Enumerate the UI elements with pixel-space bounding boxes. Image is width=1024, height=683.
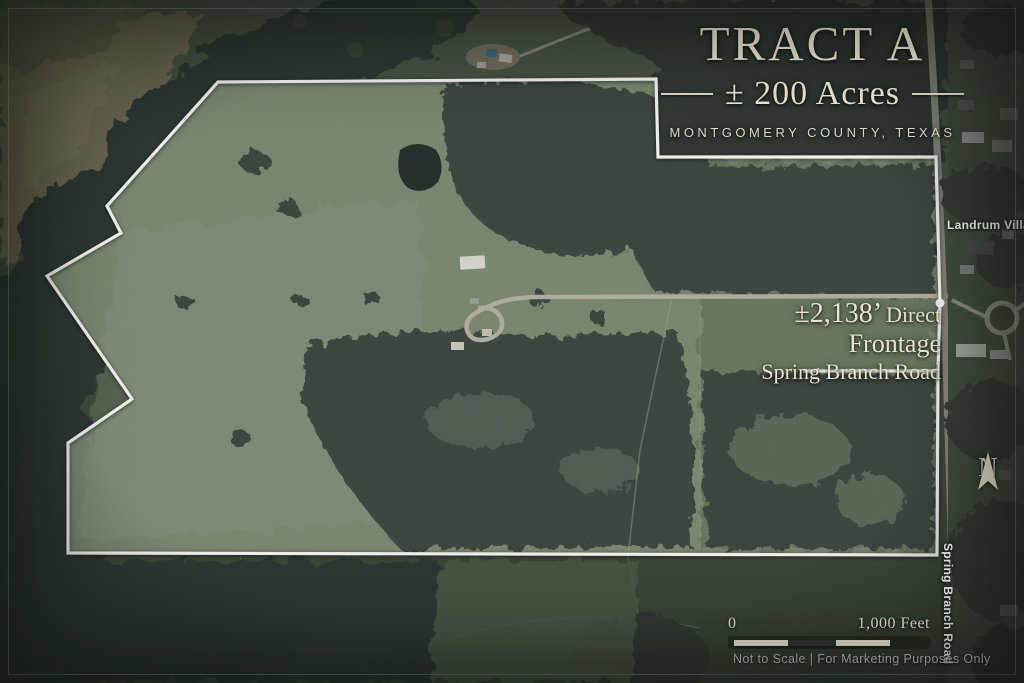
- scale-labels: 0 1,000 Feet: [728, 615, 938, 633]
- frontage-qualifier: Direct: [886, 302, 941, 327]
- title-block: TRACT A ± 200 Acres MONTGOMERY COUNTY, T…: [640, 18, 985, 140]
- frontage-callout: ±2,138’ Direct Frontage Spring Branch Ro…: [761, 300, 941, 383]
- aerial-map: TRACT A ± 200 Acres MONTGOMERY COUNTY, T…: [0, 0, 1024, 683]
- north-indicator: N: [966, 450, 1010, 483]
- scale-zero-label: 0: [728, 615, 737, 633]
- map-title: TRACT A: [640, 18, 985, 69]
- road-label-vertical: Spring Branch Road: [941, 543, 955, 664]
- county-label: MONTGOMERY COUNTY, TEXAS: [640, 125, 985, 140]
- village-label: Landrum Village: [947, 218, 1024, 232]
- north-arrow-icon: [966, 450, 1010, 494]
- scale-segment-light-1: [734, 640, 788, 646]
- scale-segment-dark: [788, 640, 837, 646]
- scale-bar: 0 1,000 Feet: [728, 615, 938, 649]
- acreage-rule-right: [912, 93, 964, 95]
- acreage-label: ± 200 Acres: [725, 75, 900, 113]
- scale-segment-light-2: [836, 640, 890, 646]
- scale-end-label: 1,000 Feet: [857, 615, 930, 633]
- disclaimer-text: Not to Scale | For Marketing Purposes On…: [733, 652, 991, 666]
- frontage-line2: Frontage: [761, 331, 941, 357]
- frontage-line1: ±2,138’ Direct: [761, 300, 941, 328]
- acreage-row: ± 200 Acres: [640, 75, 985, 113]
- frontage-measurement: ±2,138’: [794, 298, 882, 329]
- acreage-rule-left: [661, 93, 713, 95]
- scale-bar-segments: [734, 640, 890, 646]
- frontage-line3: Spring Branch Road: [761, 361, 941, 383]
- scale-bar-backdrop: [728, 636, 931, 649]
